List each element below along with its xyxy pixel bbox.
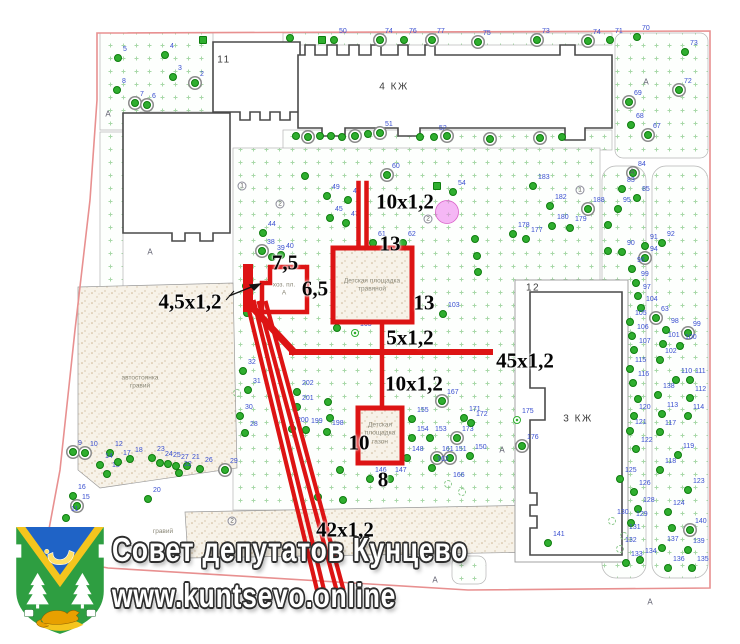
path-letter: А (432, 576, 437, 585)
dimension-label: 13 (414, 291, 435, 316)
circled-mark: 2 (228, 517, 237, 526)
watermark-title: Совет депутатов Кунцево (112, 531, 468, 569)
circled-mark: 2 (276, 200, 285, 209)
area-label: автостоянкагравий (122, 375, 159, 392)
area-label: хоз. пл.А (273, 282, 295, 299)
circled-mark: 1 (576, 186, 585, 195)
dimension-label: 5x1,2 (386, 326, 433, 351)
kuntsevo-coat-of-arms (6, 524, 114, 638)
path-letter: А (643, 78, 648, 87)
dimension-label: 13 (380, 232, 401, 257)
path-letter: А (147, 248, 152, 257)
circled-mark: 1 (238, 182, 247, 191)
watermark-url: www.kuntsevo.online (112, 577, 396, 615)
dimension-label: 8 (378, 468, 389, 493)
area-label: Детская площадкатравяной (344, 278, 400, 295)
building-label: 3 КЖ (563, 414, 592, 425)
building-label: 11 (217, 55, 230, 66)
dimension-label: 6,5 (302, 277, 328, 302)
dimension-label: 45x1,2 (496, 349, 554, 374)
path-letter: А (105, 110, 110, 119)
building-label: 4 КЖ (379, 82, 408, 93)
circled-mark: 2 (424, 215, 433, 224)
dimension-label: 7,5 (272, 251, 298, 276)
area-label: Детскаяплощадкагазон (365, 421, 395, 446)
path-letter: А (629, 168, 634, 177)
dimension-label: 4,5x1,2 (159, 290, 222, 315)
building-label: 12 (526, 283, 540, 294)
dimension-label: 10x1,2 (376, 190, 434, 215)
site-plan-screenshot: 5432876507476777573747170737269686751526… (0, 0, 740, 644)
dimension-label: 10x1,2 (385, 372, 443, 397)
path-letter: А (647, 598, 652, 607)
path-letter: А (499, 446, 504, 455)
